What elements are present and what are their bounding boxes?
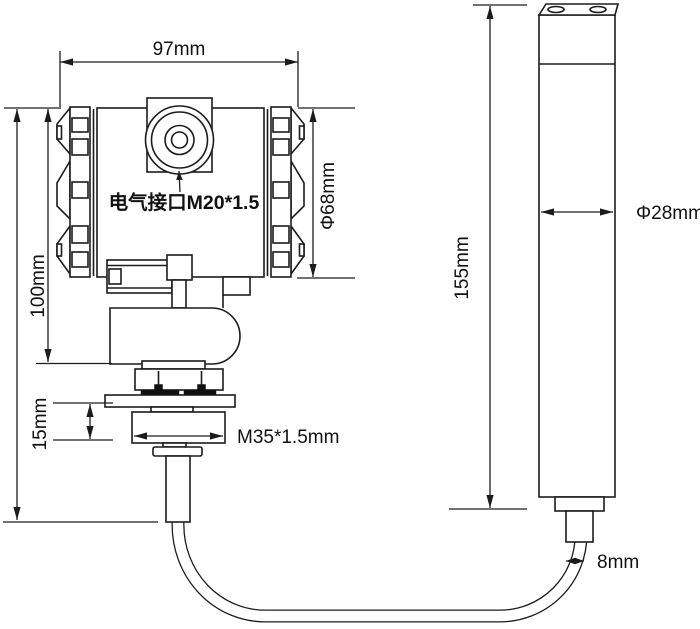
- connection-cable: [178, 514, 581, 616]
- flange-plate: [105, 395, 235, 407]
- technical-drawing-page: 97mm 100mm Φ68mm 电气接口M20*1.5: [0, 0, 700, 629]
- conduit-entry-rings: [146, 106, 214, 174]
- probe-top-hole-right: [590, 7, 606, 13]
- probe-diameter-label: Φ28mm: [636, 203, 700, 224]
- process-thread-label: M35*1.5mm: [237, 427, 339, 448]
- width-dimension-label: 97mm: [153, 39, 206, 60]
- sensor-housing: [110, 308, 240, 364]
- m35-thread-nut: [132, 412, 225, 443]
- probe-length-dimension-155mm: 155mm: [449, 5, 527, 509]
- left-end-cover: [57, 107, 94, 277]
- height-dimension-label: 100mm: [28, 254, 49, 317]
- probe-body: [539, 15, 615, 497]
- probe-top-hole-left: [548, 7, 564, 13]
- probe-bottom-collar: [555, 497, 604, 511]
- cover-diameter-dimension-68mm: Φ68mm: [297, 108, 355, 278]
- probe-length-label: 155mm: [452, 236, 473, 299]
- thread-height-dimension-15mm: 15mm: [30, 398, 113, 451]
- probe-side-view: [539, 4, 618, 542]
- electrical-port-label: 电气接口M20*1.5: [109, 191, 260, 214]
- cable-gland-tube: [166, 456, 190, 522]
- transmitter-dimension-drawing: 97mm 100mm Φ68mm 电气接口M20*1.5: [0, 0, 700, 629]
- process-connection: [105, 361, 235, 456]
- right-end-cover: [268, 107, 305, 277]
- cable-diameter-label: 8mm: [597, 552, 639, 573]
- cover-diameter-label: Φ68mm: [318, 162, 339, 230]
- thread-height-label: 15mm: [30, 398, 51, 451]
- probe-cable-neck: [566, 511, 593, 542]
- width-dimension-97mm: 97mm: [60, 39, 298, 107]
